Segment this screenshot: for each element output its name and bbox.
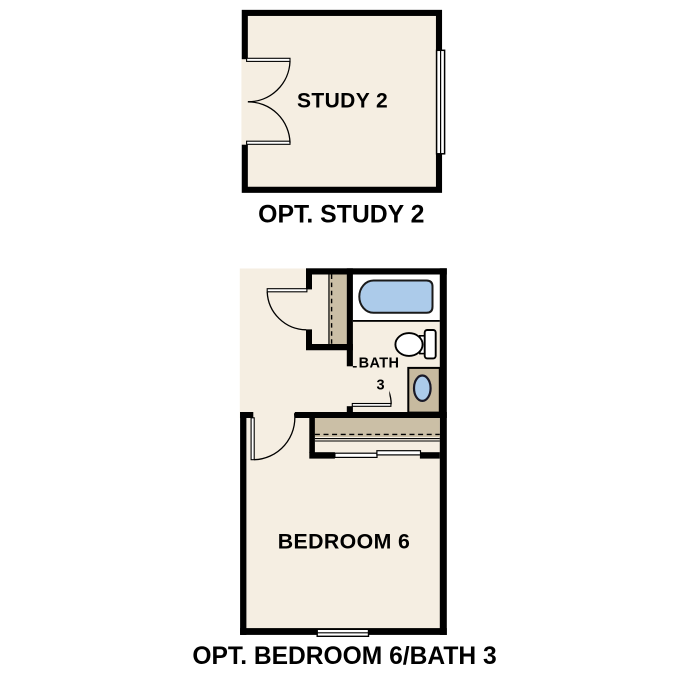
- svg-text:BATH: BATH: [359, 355, 400, 371]
- svg-text:OPT. STUDY 2: OPT. STUDY 2: [258, 202, 424, 229]
- svg-text:OPT. BEDROOM 6/BATH 3: OPT. BEDROOM 6/BATH 3: [192, 643, 496, 670]
- svg-text:BEDROOM 6: BEDROOM 6: [278, 530, 411, 554]
- svg-text:3: 3: [376, 377, 384, 393]
- svg-text:STUDY 2: STUDY 2: [297, 89, 388, 112]
